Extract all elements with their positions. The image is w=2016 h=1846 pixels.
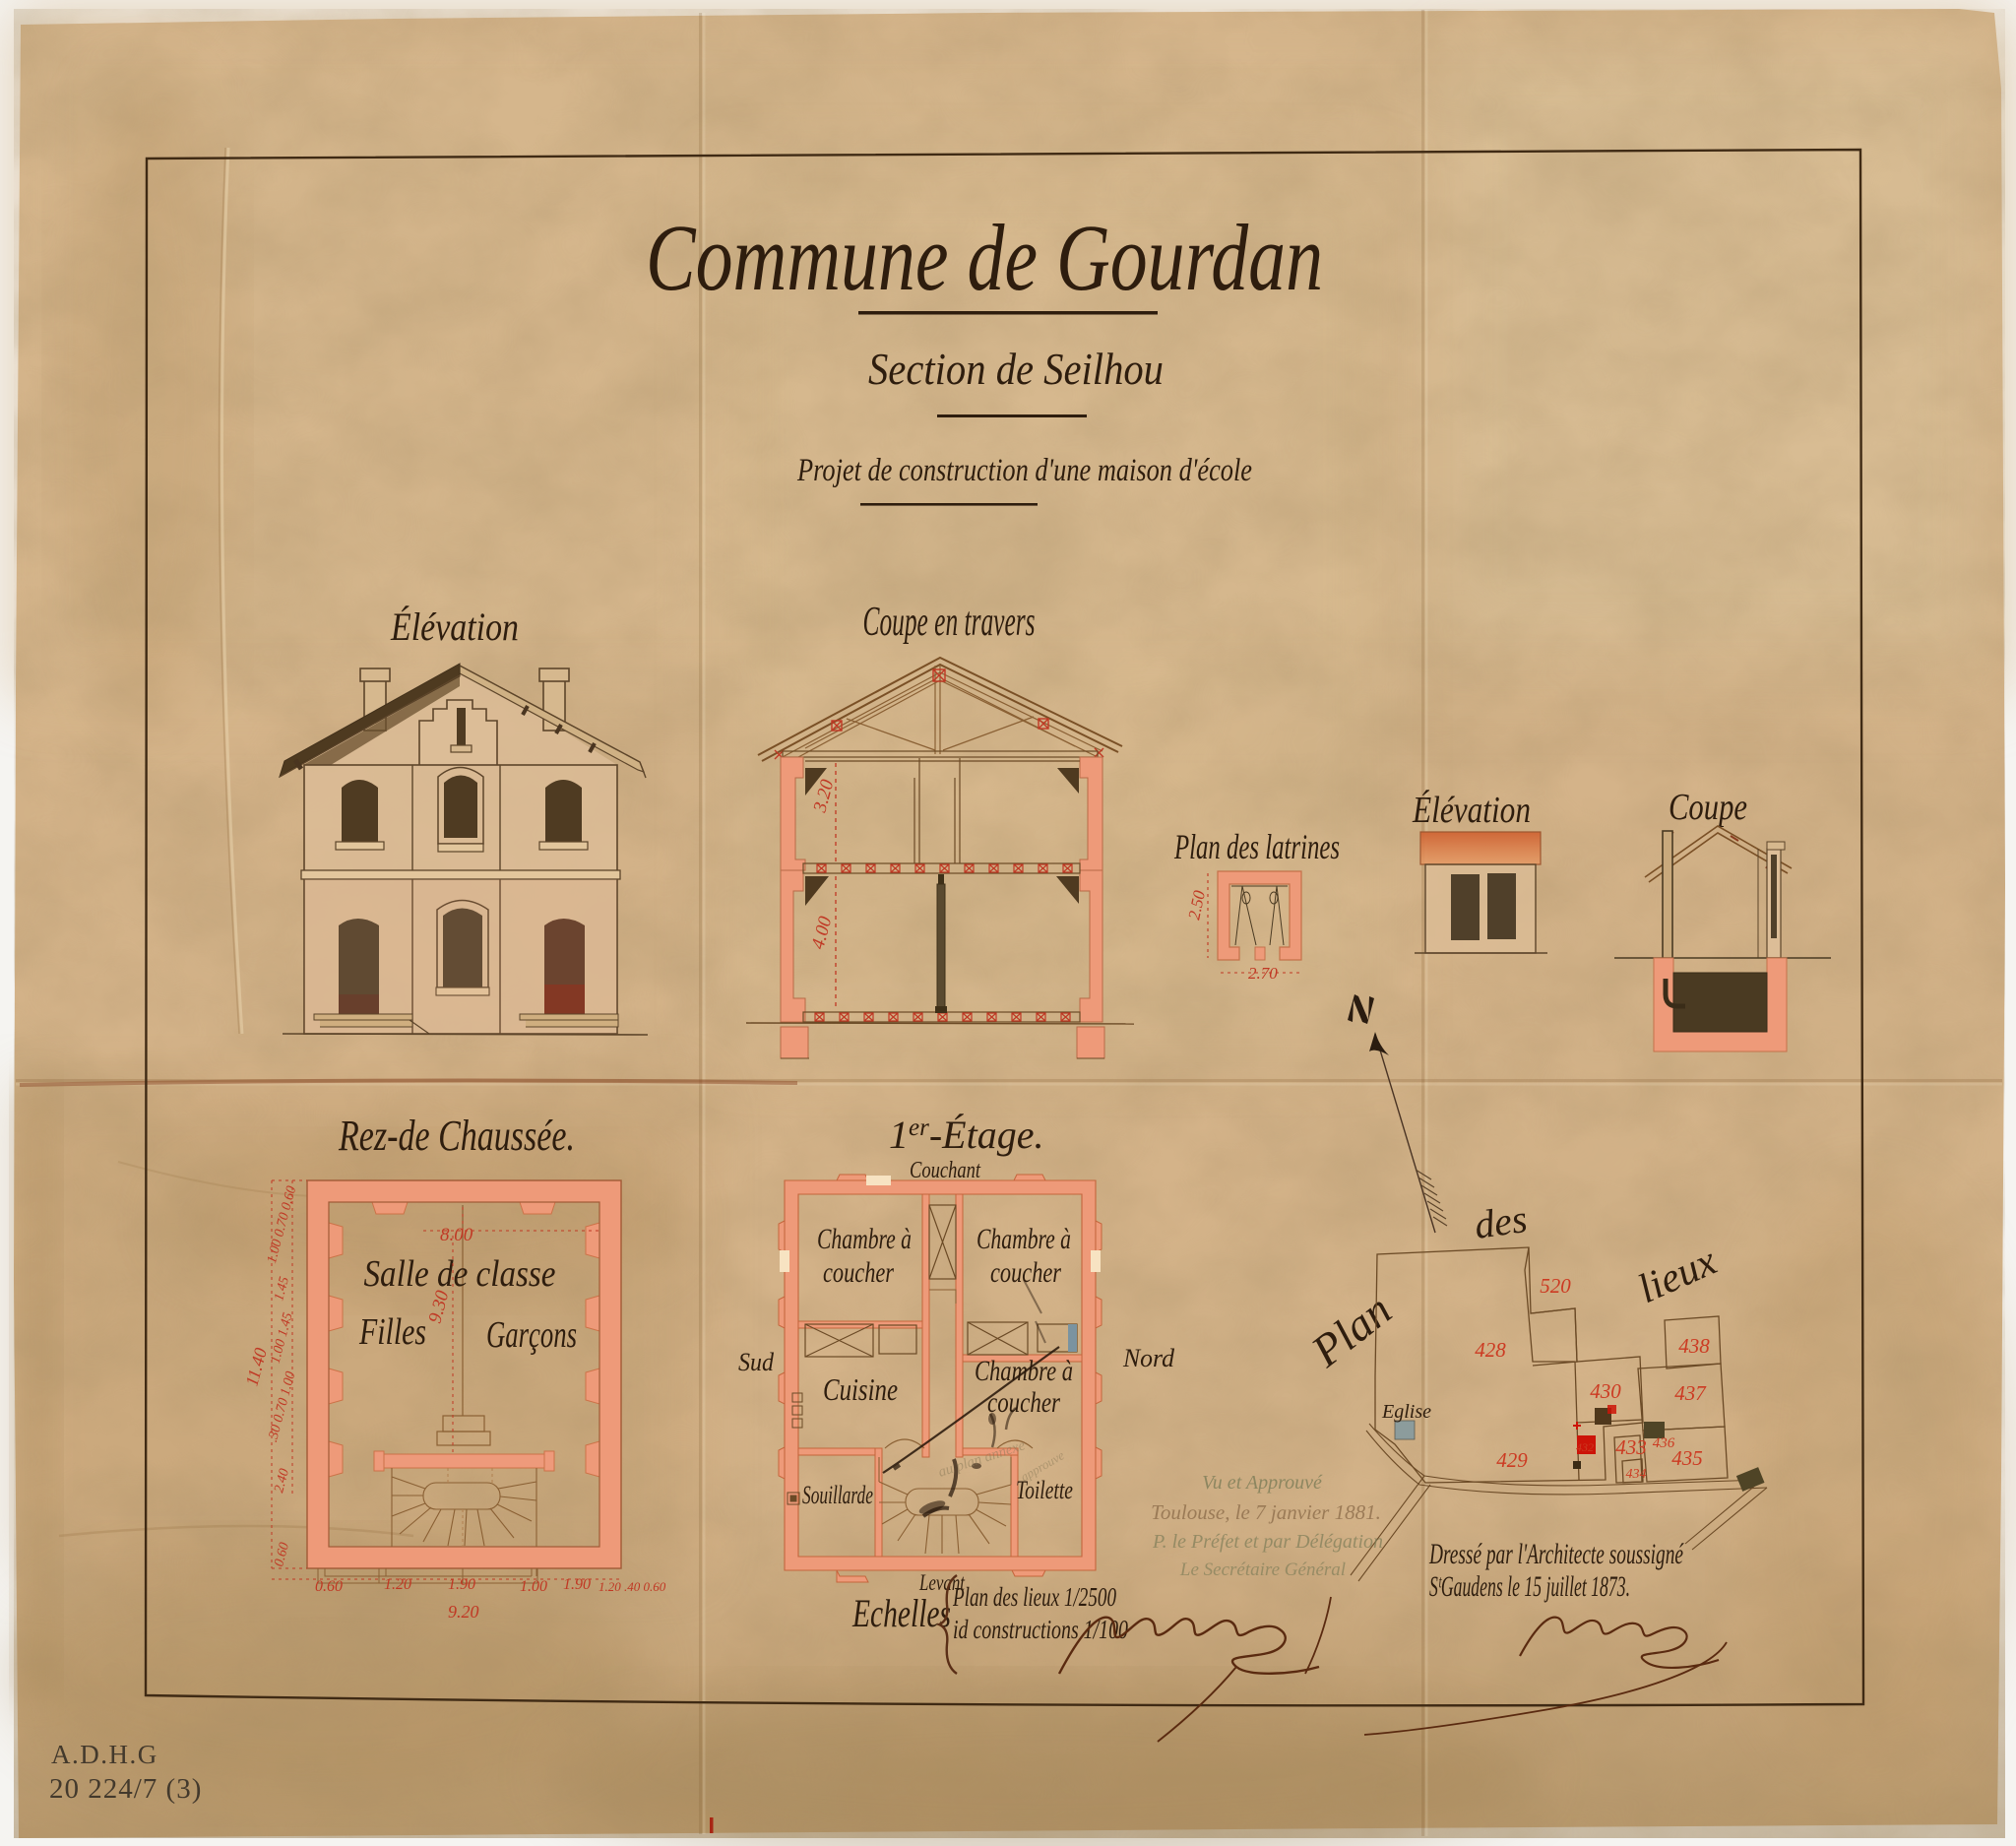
svg-text:Élévation: Élévation — [390, 605, 519, 649]
svg-text:Coupe en travers: Coupe en travers — [863, 600, 1036, 645]
svg-text:Couchant: Couchant — [910, 1158, 981, 1183]
svg-text:Echelles: Echelles — [851, 1591, 951, 1635]
svg-text:Coupe: Coupe — [1669, 787, 1747, 828]
svg-text:Souillarde: Souillarde — [802, 1481, 873, 1509]
svg-text:Rez-de Chaussée.: Rez-de Chaussée. — [338, 1112, 575, 1160]
svg-text:Plan des latrines: Plan des latrines — [1173, 827, 1340, 866]
svg-text:Vu et Approuvé: Vu et Approuvé — [1202, 1472, 1323, 1494]
svg-text:Chambre à: Chambre à — [976, 1223, 1071, 1255]
svg-text:0.60: 0.60 — [315, 1578, 343, 1595]
svg-text:434: 434 — [1626, 1467, 1647, 1482]
svg-text:430: 430 — [1590, 1379, 1621, 1403]
svg-text:1.00: 1.00 — [520, 1578, 547, 1595]
svg-text:P. le Préfet et par Délégation: P. le Préfet et par Délégation — [1152, 1531, 1383, 1553]
svg-text:Commune de Gourdan: Commune de Gourdan — [646, 205, 1323, 310]
svg-text:8.00: 8.00 — [440, 1225, 473, 1245]
svg-text:Chambre à: Chambre à — [975, 1355, 1073, 1387]
svg-text:Salle de classe: Salle de classe — [364, 1253, 556, 1295]
svg-text:Nord: Nord — [1122, 1344, 1175, 1372]
svg-text:Filles: Filles — [358, 1311, 426, 1353]
svg-text:437: 437 — [1674, 1381, 1707, 1405]
svg-text:2.70: 2.70 — [1248, 964, 1278, 983]
svg-text:428: 428 — [1475, 1338, 1506, 1362]
svg-text:Élévation: Élévation — [1412, 790, 1531, 831]
svg-text:Dressé par l'Architecte soussi: Dressé par l'Architecte soussigné — [1428, 1538, 1684, 1570]
svg-text:Garçons: Garçons — [486, 1314, 577, 1356]
svg-text:Chambre à: Chambre à — [817, 1223, 912, 1255]
svg-text:Plan des lieux 1/2500: Plan des lieux 1/2500 — [952, 1582, 1116, 1612]
svg-text:Sud: Sud — [738, 1348, 775, 1376]
svg-text:1.20: 1.20 — [384, 1576, 411, 1593]
svg-text:20 224/7 (3): 20 224/7 (3) — [49, 1773, 202, 1805]
svg-text:435: 435 — [1671, 1446, 1703, 1470]
svg-text:9.20: 9.20 — [448, 1602, 479, 1622]
svg-text:Le Secrétaire Général: Le Secrétaire Général — [1179, 1560, 1346, 1580]
svg-text:SᵗGaudens le 15 juillet 1873.: SᵗGaudens le 15 juillet 1873. — [1429, 1570, 1630, 1603]
svg-text:Section de Seilhou: Section de Seilhou — [868, 344, 1164, 394]
svg-text:Cuisine: Cuisine — [823, 1371, 898, 1407]
svg-text:520: 520 — [1540, 1274, 1571, 1298]
svg-text:432: 432 — [1576, 1440, 1594, 1454]
svg-text:Eglise: Eglise — [1381, 1401, 1431, 1423]
svg-text:1.90: 1.90 — [563, 1576, 591, 1593]
svg-text:438: 438 — [1678, 1334, 1710, 1358]
svg-text:Toulouse, le 7 janvier 1881.: Toulouse, le 7 janvier 1881. — [1151, 1500, 1381, 1524]
svg-text:A.D.H.G: A.D.H.G — [51, 1740, 158, 1769]
svg-text:433: 433 — [1615, 1435, 1647, 1459]
svg-text:Projet de construction d'une m: Projet de construction d'une maison d'éc… — [796, 453, 1252, 488]
svg-text:coucher: coucher — [823, 1256, 894, 1289]
svg-text:429: 429 — [1496, 1448, 1528, 1472]
svg-text:1.90: 1.90 — [448, 1576, 475, 1593]
svg-text:1.20 .40 0.60: 1.20 .40 0.60 — [598, 1579, 666, 1594]
svg-text:des: des — [1472, 1196, 1530, 1247]
